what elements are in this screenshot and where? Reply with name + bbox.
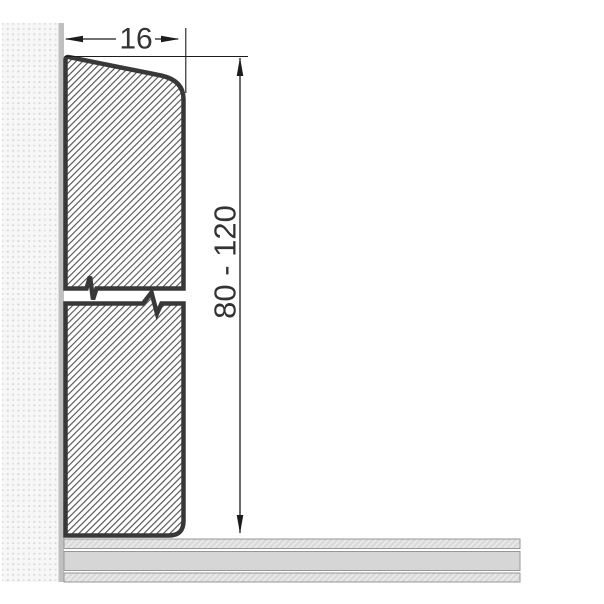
- wall-surface: [2, 23, 59, 582]
- floor-core-layer: [64, 552, 520, 571]
- wall: [2, 23, 64, 582]
- skirting-upper-section: [66, 57, 184, 300]
- floor-top-layer: [64, 539, 520, 549]
- width-dimension-label: 16: [119, 23, 152, 56]
- drawing-canvas: 16 80 - 120: [0, 0, 604, 604]
- wall-edge-strip: [59, 23, 65, 582]
- arrowhead-down-icon: [237, 515, 244, 534]
- skirting-lower-section: [66, 293, 184, 536]
- arrowhead-right-icon: [161, 36, 180, 43]
- skirting-profile: [66, 57, 184, 536]
- arrowhead-up-icon: [237, 58, 244, 77]
- technical-drawing: 16 80 - 120: [0, 0, 604, 604]
- height-dimension-label: 80 - 120: [208, 205, 243, 319]
- floor: [64, 539, 520, 582]
- floor-bottom-layer: [64, 573, 520, 582]
- arrowhead-left-icon: [65, 36, 84, 43]
